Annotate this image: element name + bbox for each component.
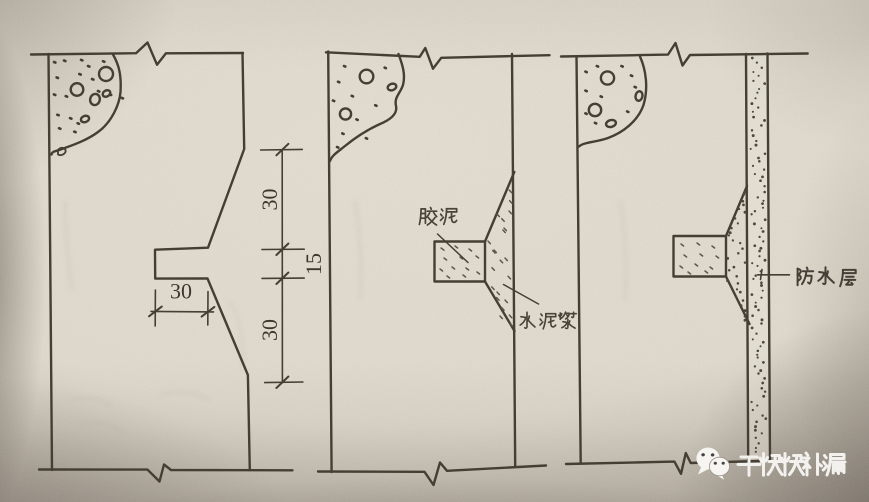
svg-text:15: 15 — [301, 253, 326, 275]
svg-text:30: 30 — [170, 279, 192, 304]
svg-text:30: 30 — [257, 189, 282, 211]
svg-text:30: 30 — [257, 319, 282, 341]
